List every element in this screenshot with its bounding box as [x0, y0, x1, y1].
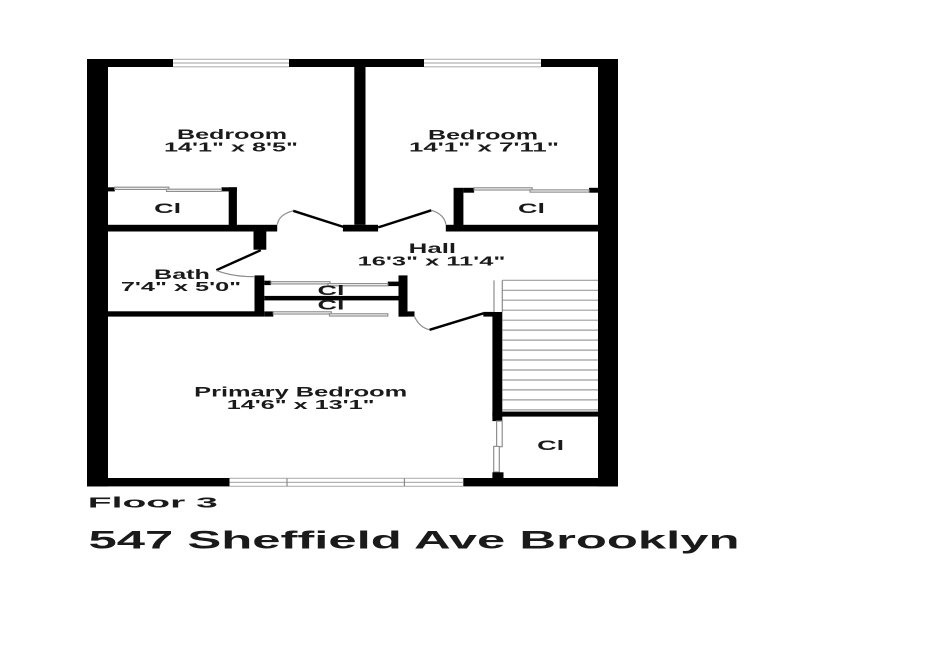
svg-text:14'1" x 8'5": 14'1" x 8'5" — [164, 140, 298, 154]
svg-text:Cl: Cl — [518, 201, 545, 216]
svg-text:Cl: Cl — [154, 201, 181, 216]
svg-text:Primary Bedroom: Primary Bedroom — [194, 383, 407, 399]
svg-text:14'6" x 13'1": 14'6" x 13'1" — [227, 398, 375, 412]
svg-text:Floor 3: Floor 3 — [88, 496, 218, 512]
svg-text:14'1" x 7'11": 14'1" x 7'11" — [409, 141, 559, 155]
svg-text:16'3" x 11'4": 16'3" x 11'4" — [358, 254, 506, 268]
svg-text:Cl: Cl — [318, 297, 345, 312]
svg-text:547 Sheffield Ave Brooklyn: 547 Sheffield Ave Brooklyn — [89, 528, 740, 555]
svg-text:7'4" x 5'0": 7'4" x 5'0" — [121, 280, 241, 294]
svg-text:Cl: Cl — [318, 283, 345, 298]
svg-text:Cl: Cl — [537, 438, 564, 453]
